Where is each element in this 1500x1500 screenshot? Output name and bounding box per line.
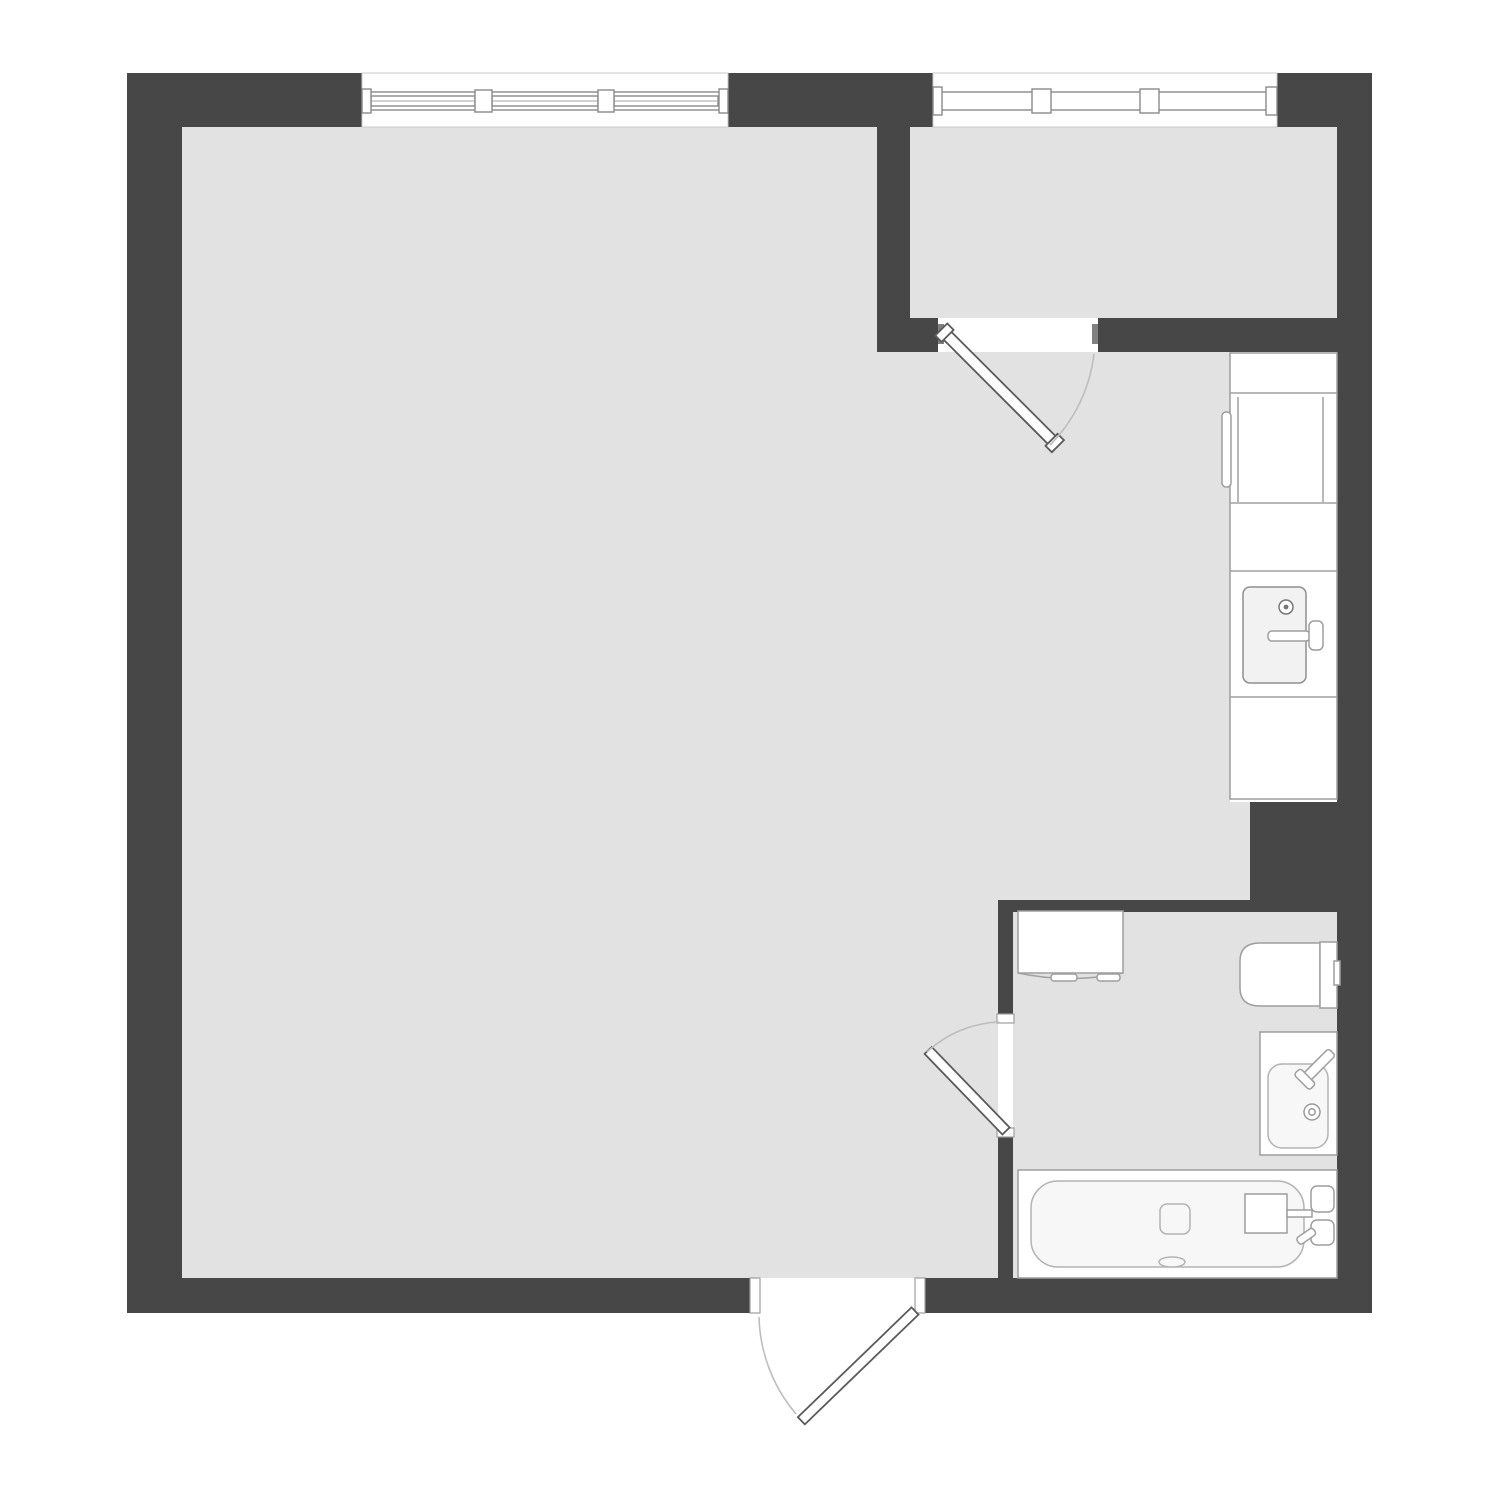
wall-bathroom-top — [998, 900, 1337, 912]
main-window-cap-right — [719, 89, 728, 113]
wall-right — [1337, 73, 1372, 1313]
wall-bottom-left — [127, 1278, 750, 1313]
toilet-bowl — [1240, 943, 1320, 1006]
main-window-mullion-1 — [475, 90, 492, 112]
balcony-window-band — [941, 92, 1268, 110]
balcony-door-jamb-right — [1092, 324, 1098, 344]
washing-machine — [1018, 911, 1123, 973]
entry-door-jamb-right — [915, 1278, 925, 1313]
wall-kitchen-bath-block — [1250, 802, 1337, 912]
fridge-handle — [1222, 412, 1231, 487]
bathroom-sink-drain-inner — [1309, 1109, 1315, 1115]
bathtub-mixer-pipe — [1287, 1210, 1312, 1217]
entry-door-threshold — [760, 1278, 915, 1313]
balcony-window-cap-right — [1266, 87, 1277, 115]
toilet-flush-button — [1334, 961, 1340, 985]
bathtub-mixer-box — [1245, 1194, 1287, 1233]
kitchen-counter-group — [1222, 353, 1337, 799]
wall-bottom-right — [925, 1278, 1372, 1313]
balcony-window — [933, 73, 1277, 127]
balcony-floor — [910, 127, 1337, 318]
wall-bathroom-left-upper — [998, 912, 1013, 1015]
wall-left — [127, 73, 182, 1313]
balcony-window-cap-left — [933, 87, 942, 115]
floor-plan-canvas — [0, 0, 1500, 1500]
wall-bathroom-left-lower — [998, 1137, 1013, 1278]
bathtub-overflow — [1159, 1257, 1185, 1267]
washing-machine-foot-right — [1097, 974, 1120, 981]
balcony-window-mullion-2 — [1140, 89, 1159, 113]
kitchen-counter — [1230, 353, 1337, 799]
bathroom-door-jamb-top — [997, 1014, 1014, 1023]
kitchen-faucet-spout — [1268, 631, 1310, 641]
bathtub-tap-top — [1311, 1186, 1334, 1212]
wall-balcony-bottom-right — [1098, 318, 1337, 352]
main-window-mullion-2 — [598, 90, 614, 112]
washing-machine-foot-left — [1051, 974, 1077, 981]
floors — [182, 127, 1337, 1278]
floor-plan-svg — [0, 0, 1500, 1500]
kitchen-faucet-handle — [1309, 621, 1323, 650]
main-window — [362, 73, 728, 127]
wall-balcony-bottom-left — [877, 318, 938, 352]
balcony-window-mullion-1 — [1032, 89, 1051, 113]
bathtub-drain — [1160, 1204, 1190, 1234]
kitchen-faucet-dot — [1284, 605, 1289, 610]
entry-door-jamb-left — [750, 1278, 760, 1313]
wall-top-middle — [728, 73, 933, 127]
main-window-cap-left — [362, 89, 371, 113]
